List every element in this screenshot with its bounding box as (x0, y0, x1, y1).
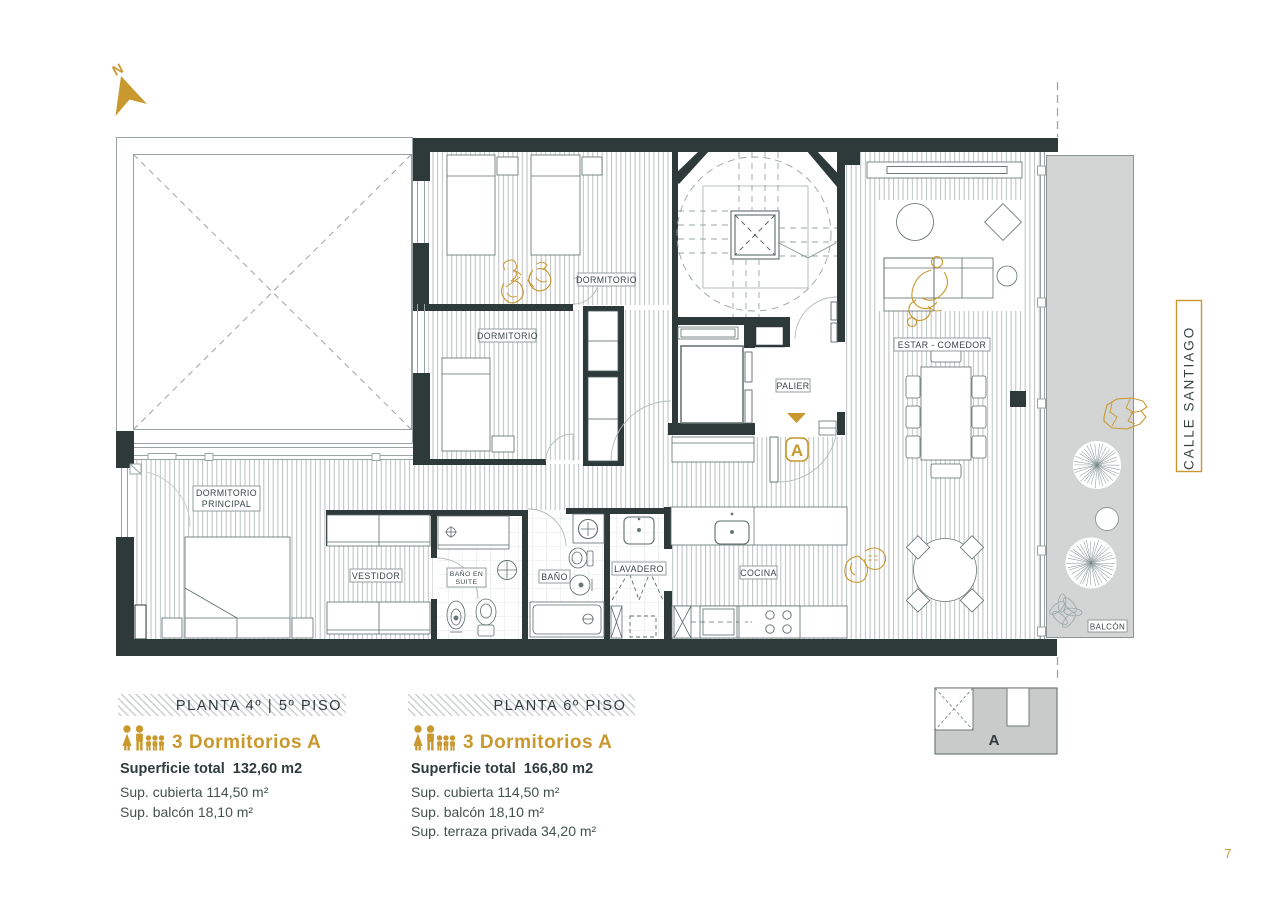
svg-text:N: N (109, 60, 125, 79)
svg-text:A: A (791, 441, 803, 460)
svg-text:Superficie total 132,60 m2: Superficie total 132,60 m2 (120, 761, 302, 777)
svg-text:PALIER: PALIER (776, 381, 809, 391)
svg-text:CALLE SANTIAGO: CALLE SANTIAGO (1182, 326, 1197, 470)
svg-text:BAÑO: BAÑO (541, 572, 568, 582)
svg-text:PLANTA 4º | 5º PISO: PLANTA 4º | 5º PISO (176, 698, 342, 714)
svg-text:LAVADERO: LAVADERO (614, 564, 664, 574)
svg-text:PLANTA 6º PISO: PLANTA 6º PISO (494, 698, 627, 714)
svg-text:SUITE: SUITE (455, 579, 477, 586)
svg-text:Sup. balcón 18,10 m²: Sup. balcón 18,10 m² (411, 804, 544, 820)
svg-text:3 Dormitorios A: 3 Dormitorios A (172, 732, 321, 753)
svg-text:PRINCIPAL: PRINCIPAL (202, 499, 251, 509)
svg-text:VESTIDOR: VESTIDOR (352, 571, 400, 581)
svg-text:COCINA: COCINA (740, 568, 777, 578)
svg-text:BAÑO EN: BAÑO EN (450, 569, 483, 578)
svg-text:DORMITORIO: DORMITORIO (196, 488, 257, 498)
svg-text:A: A (989, 732, 1000, 749)
svg-text:3 Dormitorios A: 3 Dormitorios A (463, 732, 612, 753)
svg-text:DORMITORIO: DORMITORIO (576, 275, 637, 285)
svg-text:Superficie total 166,80 m2: Superficie total 166,80 m2 (411, 761, 593, 777)
svg-text:Sup. cubierta 114,50 m²: Sup. cubierta 114,50 m² (411, 784, 560, 800)
svg-text:7: 7 (1225, 847, 1232, 861)
svg-text:ESTAR - COMEDOR: ESTAR - COMEDOR (898, 340, 986, 350)
svg-text:Sup. terraza privada 34,20 m²: Sup. terraza privada 34,20 m² (411, 823, 597, 839)
svg-text:DORMITORIO: DORMITORIO (477, 331, 538, 341)
svg-text:Sup. balcón 18,10 m²: Sup. balcón 18,10 m² (120, 804, 253, 820)
svg-text:Sup. cubierta 114,50 m²: Sup. cubierta 114,50 m² (120, 784, 269, 800)
svg-text:BALCÓN: BALCÓN (1090, 623, 1125, 632)
